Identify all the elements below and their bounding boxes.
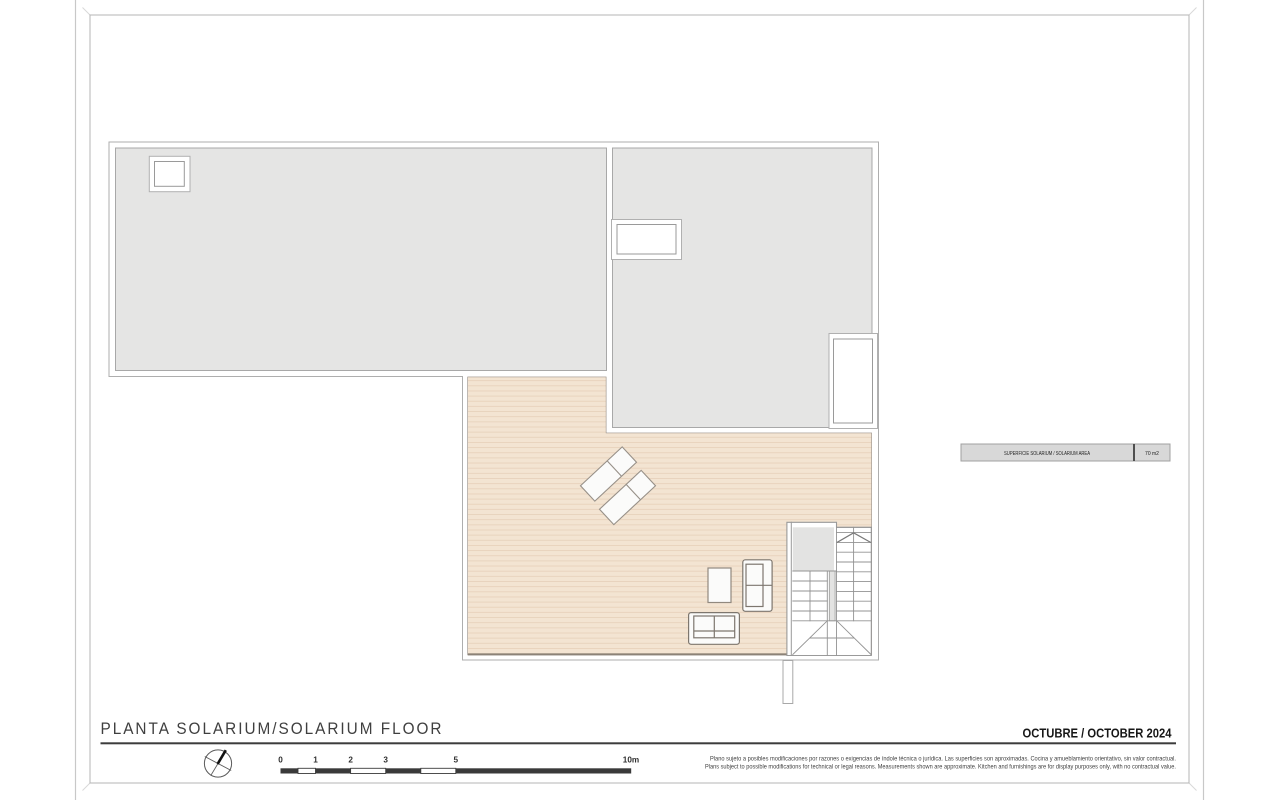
svg-text:1: 1	[313, 756, 318, 765]
svg-text:10m: 10m	[623, 756, 639, 765]
svg-text:2: 2	[348, 756, 353, 765]
svg-text:70 m2: 70 m2	[1145, 451, 1159, 457]
svg-text:PLANTA SOLARIUM/SOLARIUM FLOOR: PLANTA SOLARIUM/SOLARIUM FLOOR	[101, 719, 444, 738]
svg-text:0: 0	[278, 756, 283, 765]
svg-text:SUPERFICIE SOLARIUM / SOLARIU: SUPERFICIE SOLARIUM / SOLARIUM AREA	[1004, 451, 1091, 457]
svg-text:3: 3	[383, 756, 388, 765]
svg-text:5: 5	[454, 756, 459, 765]
svg-text:Plans subject to possible modi: Plans subject to possible modifications …	[705, 763, 1176, 770]
svg-text:OCTUBRE / OCTOBER 2024: OCTUBRE / OCTOBER 2024	[1023, 726, 1173, 741]
svg-text:Plano sujeto a posibles modifi: Plano sujeto a posibles modificaciones p…	[710, 755, 1176, 762]
